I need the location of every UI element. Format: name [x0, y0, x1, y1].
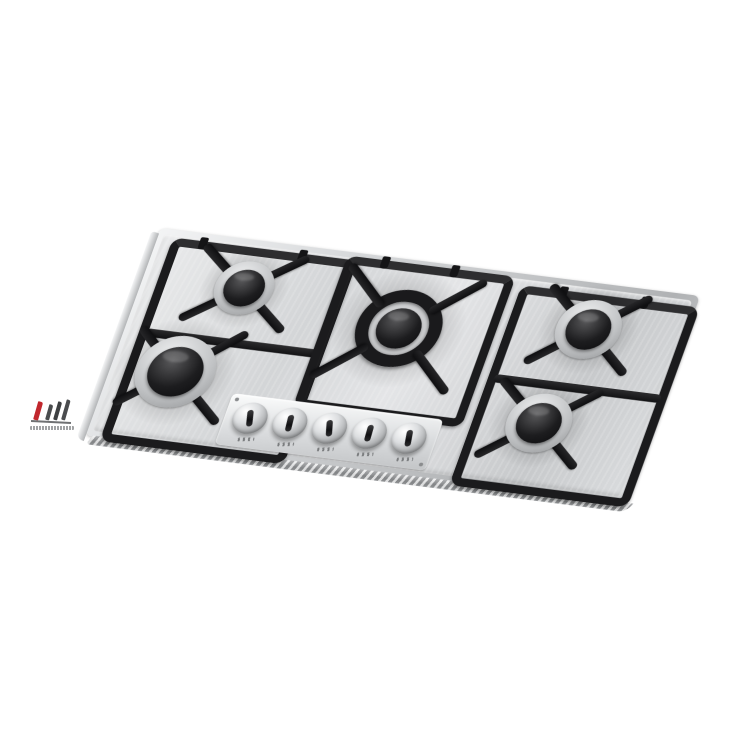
knob-marking — [317, 447, 334, 451]
brand-logo — [30, 394, 80, 432]
knob-marking — [357, 452, 374, 456]
knob-slot — [246, 410, 254, 427]
logo-baseline — [31, 420, 71, 424]
screw-icon — [234, 397, 239, 401]
knob-marking — [237, 437, 254, 441]
burner-center — [370, 306, 428, 352]
knob-slot — [404, 430, 413, 447]
burner-right-rear — [559, 307, 617, 353]
gas-cooktop — [85, 228, 700, 503]
knob-slot — [285, 415, 295, 432]
burner-knob-4 — [349, 417, 390, 449]
stainless-tray — [85, 228, 700, 503]
knob-marking — [277, 442, 294, 446]
product-photo — [0, 0, 750, 750]
burner-knob-2 — [269, 407, 310, 439]
burner-left-front — [140, 344, 211, 400]
burner-knob-1 — [229, 402, 270, 434]
burner-right-front — [510, 400, 568, 446]
knob-marking — [396, 457, 413, 461]
grate-nub — [449, 265, 461, 278]
burner-left-rear — [218, 267, 271, 308]
burner-knob-5 — [388, 422, 429, 454]
logo-bar-icon — [61, 399, 71, 420]
screw-icon — [418, 462, 423, 466]
knob-slot — [364, 425, 375, 442]
burner-knob-3 — [309, 412, 350, 444]
grate-nub — [379, 256, 391, 269]
logo-bar-icon — [45, 404, 53, 420]
logo-red-slash-icon — [33, 401, 43, 421]
brand-logo-text — [30, 426, 74, 430]
knob-slot — [326, 420, 333, 437]
